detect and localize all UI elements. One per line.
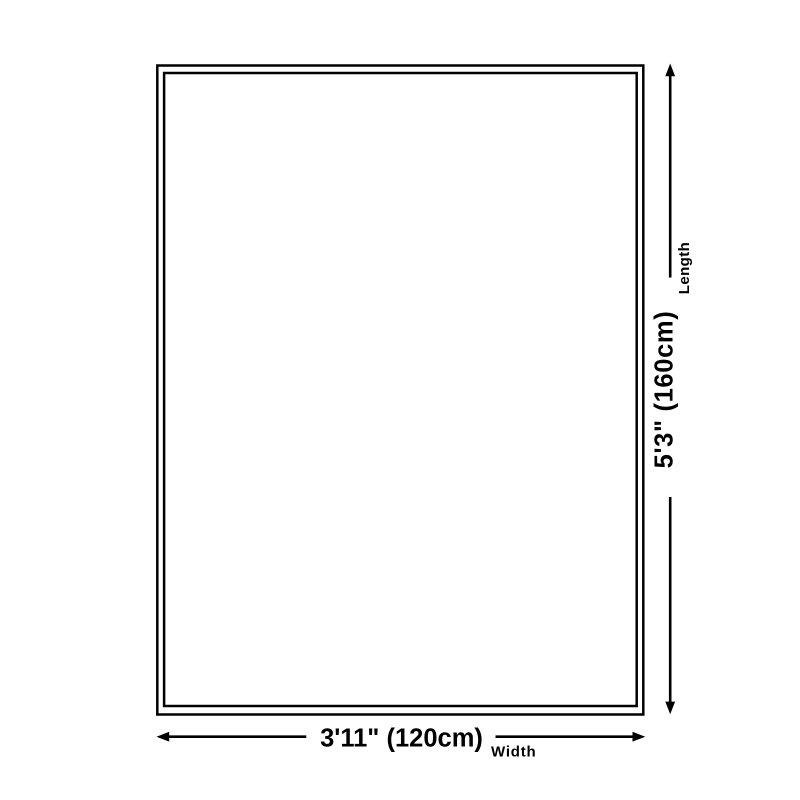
svg-text:Length: Length [676,242,693,294]
svg-text:Width: Width [491,744,537,761]
svg-text:5'3" (160cm): 5'3" (160cm) [651,311,679,469]
svg-text:3'11" (120cm): 3'11" (120cm) [320,725,483,753]
